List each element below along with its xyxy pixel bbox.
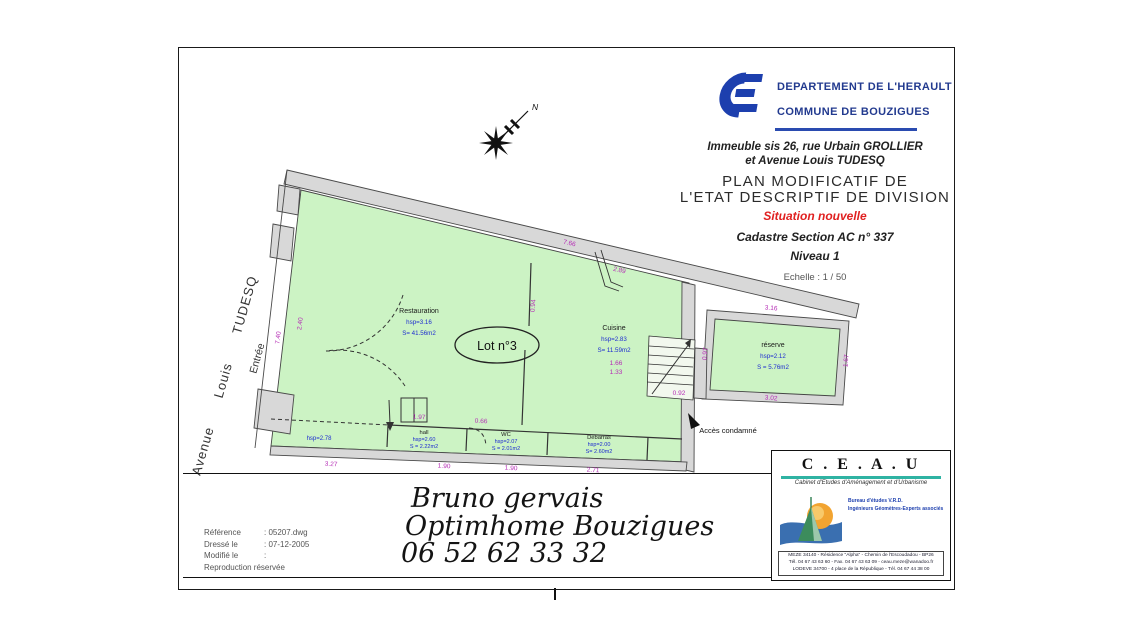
- drawn-date-label: Dressé le: [204, 539, 264, 551]
- room-reserve-name: réserve: [761, 342, 784, 349]
- sheet-fold-tick: [554, 588, 556, 600]
- reference-row: Référence: 05207.dwg: [204, 527, 309, 539]
- room-restauration-area: S= 41.56m2: [402, 330, 436, 337]
- access-note-text: Accès condamné: [699, 426, 757, 435]
- dim-092: 0.92: [673, 390, 686, 397]
- room-debarras-name: Débarras: [587, 435, 611, 441]
- header-underline: [775, 128, 917, 131]
- cadastre-reference: Cadastre Section AC n° 337: [657, 230, 973, 244]
- dim-190a: 1.90: [438, 463, 451, 471]
- room-hall-area: S = 2.22m2: [410, 444, 438, 450]
- reference-block: Référence: 05207.dwg Dressé le: 07-12-20…: [204, 527, 309, 573]
- room-restauration-hsp: hsp=3.16: [406, 319, 432, 326]
- dim-066: 0.66: [475, 418, 488, 426]
- north-arrow-icon: N: [479, 102, 539, 160]
- commune-title: COMMUNE DE BOUZIGUES: [777, 106, 930, 118]
- dim-327: 3.27: [325, 461, 338, 469]
- signature-phone: 06 52 62 33 32: [401, 540, 714, 568]
- department-title: DEPARTEMENT DE L'HERAULT: [777, 81, 952, 93]
- dim-167: 1.67: [842, 354, 850, 368]
- dim-166: 1.66: [610, 360, 623, 367]
- room-wc-hsp: hsp=2.07: [495, 439, 518, 445]
- ce-logo-icon: [701, 68, 763, 124]
- firm-line2: Ingénieurs Géomètres-Experts associés: [848, 506, 946, 514]
- dim-190b: 1.90: [505, 465, 518, 473]
- reference-row: Dressé le: 07-12-2005: [204, 539, 309, 551]
- room-left-hsp: hsp=2.78: [307, 436, 333, 442]
- room-hall-hsp: hsp=2.60: [413, 437, 436, 443]
- room-wc-name: WC: [501, 432, 511, 438]
- firm-address1: MEZE 34140 - Résidence "Alpha" - Chemin …: [779, 553, 943, 560]
- signature-name: Bruno gervais: [411, 485, 714, 513]
- firm-address3: LODEVE 34700 - 4 place de la République …: [779, 567, 943, 574]
- room-cuisine-name: Cuisine: [602, 325, 625, 332]
- room-debarras-area: S= 2.60m2: [586, 449, 613, 455]
- north-label: N: [532, 102, 539, 112]
- dim-097: 0.97: [701, 347, 709, 361]
- firm-line1: Bureau d'études V.R.D.: [848, 498, 946, 506]
- signature-block: Bruno gervais Optimhome Bouzigues 06 52 …: [401, 485, 714, 568]
- firm-name: C . E . A . U: [772, 456, 950, 474]
- room-cuisine-area: S= 11.59m2: [597, 347, 631, 354]
- firm-logo-icon: [780, 495, 842, 547]
- staircase: [647, 336, 695, 400]
- dim-197: 1.97: [413, 414, 426, 422]
- level-label: Niveau 1: [657, 249, 973, 263]
- reference-row: Reproduction réservée: [204, 562, 309, 574]
- signature-company: Optimhome Bouzigues: [405, 513, 714, 541]
- reference-row: Modifié le:: [204, 550, 309, 562]
- building-address-line2: et Avenue Louis TUDESQ: [657, 155, 973, 169]
- room-reserve-hsp: hsp=2.12: [760, 353, 786, 360]
- room-wc-area: S = 2.01m2: [492, 446, 520, 452]
- dim-740: 7.40: [274, 331, 283, 345]
- title-block: Immeuble sis 26, rue Urbain GROLLIER et …: [657, 141, 973, 283]
- dim-302: 3.02: [765, 395, 778, 403]
- plan-title-line1: PLAN MODIFICATIF DE: [657, 174, 973, 191]
- situation-status: Situation nouvelle: [657, 209, 973, 223]
- drawn-date-value: : 07-12-2005: [264, 540, 309, 549]
- modified-date-label: Modifié le: [204, 550, 264, 562]
- lot-number-text: Lot n°3: [477, 339, 517, 353]
- building-address-line1: Immeuble sis 26, rue Urbain GROLLIER: [657, 141, 973, 155]
- copyright-label: Reproduction réservée: [204, 563, 285, 572]
- room-cuisine-hsp: hsp=2.83: [601, 336, 627, 343]
- dim-094: 0.94: [529, 299, 537, 313]
- firm-box: C . E . A . U Cabinet d'Etudes d'Aménage…: [771, 450, 951, 581]
- drawing-sheet: Lot n°3 Accès condamné N Restauration hs…: [178, 47, 955, 590]
- scale-label: Echelle : 1 / 50: [657, 272, 973, 283]
- reference-value: : 05207.dwg: [264, 528, 308, 537]
- room-restauration-name: Restauration: [399, 308, 439, 315]
- modified-date-value: :: [264, 551, 266, 560]
- room-reserve-area: S = 5.76m2: [757, 364, 789, 371]
- divider-top: [183, 473, 771, 474]
- room-hall-name: hall: [419, 430, 428, 436]
- room-debarras-hsp: hsp=2.00: [588, 442, 611, 448]
- dim-316: 3.16: [765, 305, 778, 313]
- firm-underline: [781, 476, 941, 479]
- access-note: Accès condamné: [688, 413, 757, 435]
- plan-title-line2: L'ETAT DESCRIPTIF DE DIVISION: [657, 190, 973, 207]
- firm-subtitle: Cabinet d'Etudes d'Aménagement et d'Urba…: [772, 480, 950, 486]
- reference-label: Référence: [204, 527, 264, 539]
- firm-address2: Tél. 04 67 43 63 60 - Fax. 04 67 43 63 0…: [779, 560, 943, 567]
- divider-bottom: [183, 577, 771, 578]
- dim-133: 1.33: [610, 369, 623, 376]
